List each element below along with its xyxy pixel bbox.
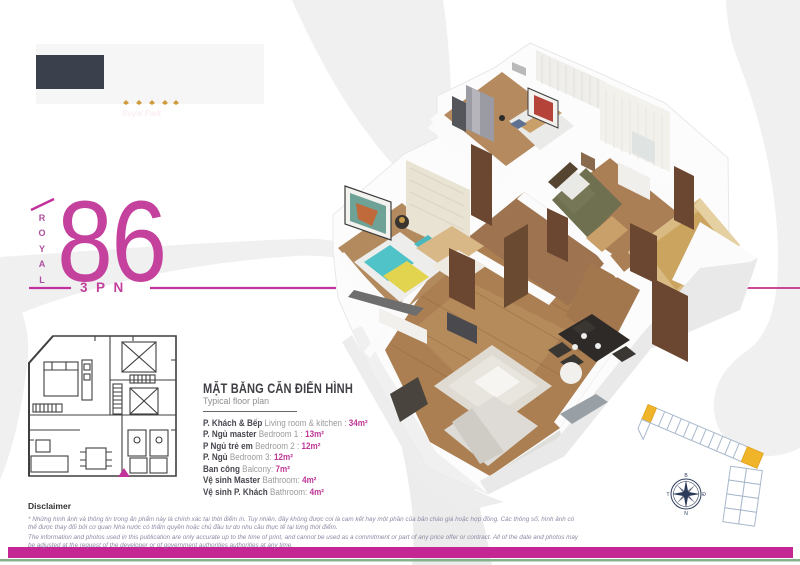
svg-text:N: N (684, 511, 688, 517)
svg-text:B: B (684, 473, 688, 479)
svg-text:Đ: Đ (702, 492, 706, 498)
svg-text:T: T (666, 492, 669, 498)
